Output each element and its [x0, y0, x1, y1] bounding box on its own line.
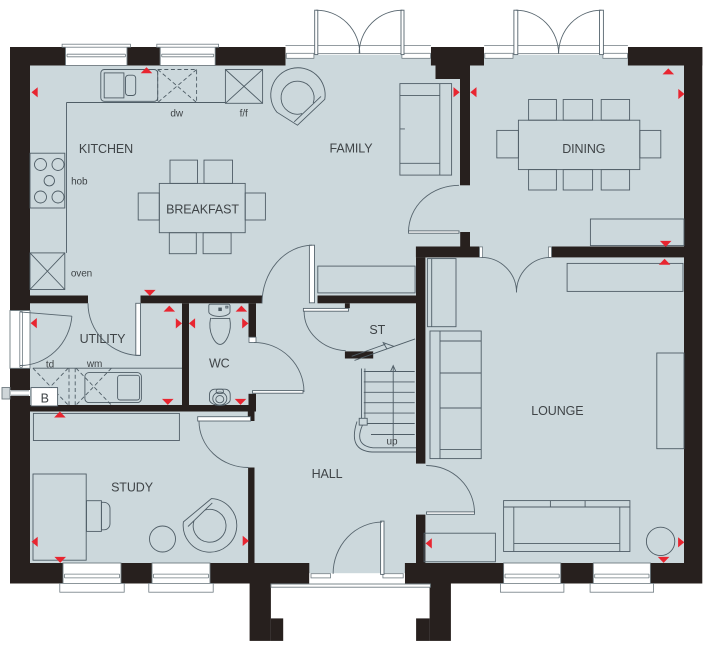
svg-text:UTILITY: UTILITY	[80, 332, 127, 346]
svg-text:hob: hob	[71, 177, 88, 188]
svg-text:dw: dw	[170, 109, 183, 120]
svg-text:oven: oven	[71, 269, 92, 280]
svg-text:STUDY: STUDY	[111, 481, 154, 495]
svg-text:f/f: f/f	[240, 109, 248, 120]
svg-text:B: B	[41, 392, 49, 406]
svg-text:HALL: HALL	[312, 467, 343, 481]
svg-text:wm: wm	[86, 359, 102, 370]
svg-text:FAMILY: FAMILY	[330, 142, 374, 156]
svg-text:BREAKFAST: BREAKFAST	[166, 203, 239, 217]
svg-text:up: up	[387, 436, 398, 447]
svg-text:ST: ST	[369, 323, 385, 337]
svg-text:DINING: DINING	[562, 142, 605, 156]
svg-text:LOUNGE: LOUNGE	[531, 404, 583, 418]
svg-text:KITCHEN: KITCHEN	[79, 142, 133, 156]
svg-text:td: td	[46, 359, 54, 370]
svg-text:WC: WC	[209, 357, 230, 371]
